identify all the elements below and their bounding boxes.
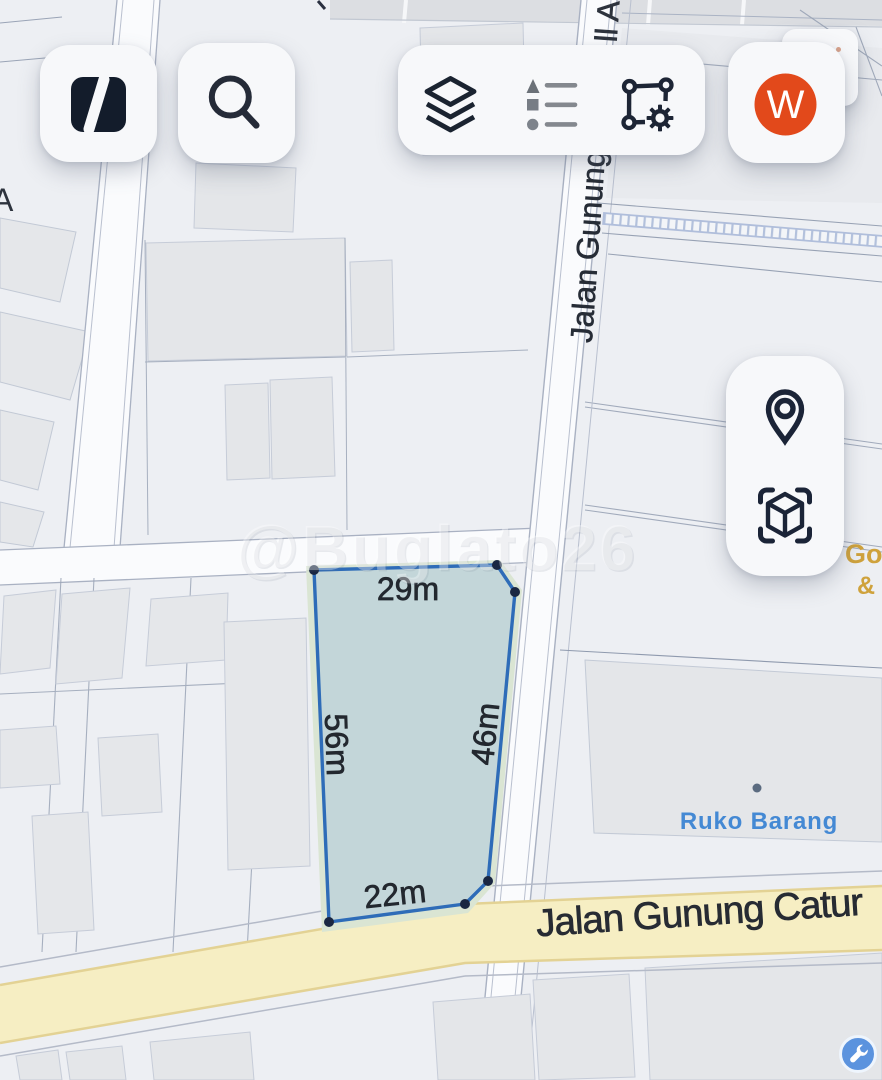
svg-text:Gos: Gos <box>845 539 882 569</box>
svg-text:22m: 22m <box>362 873 428 915</box>
svg-text:&: & <box>857 572 875 600</box>
svg-text:Ruko Barang: Ruko Barang <box>680 808 838 835</box>
svg-text:46m: 46m <box>464 701 506 767</box>
svg-text:56m: 56m <box>318 713 356 776</box>
svg-text:W: W <box>767 83 805 127</box>
svg-text:ll A: ll A <box>589 0 627 43</box>
svg-text:A: A <box>0 182 14 218</box>
svg-text:@Buglato26: @Buglato26 <box>236 512 638 584</box>
